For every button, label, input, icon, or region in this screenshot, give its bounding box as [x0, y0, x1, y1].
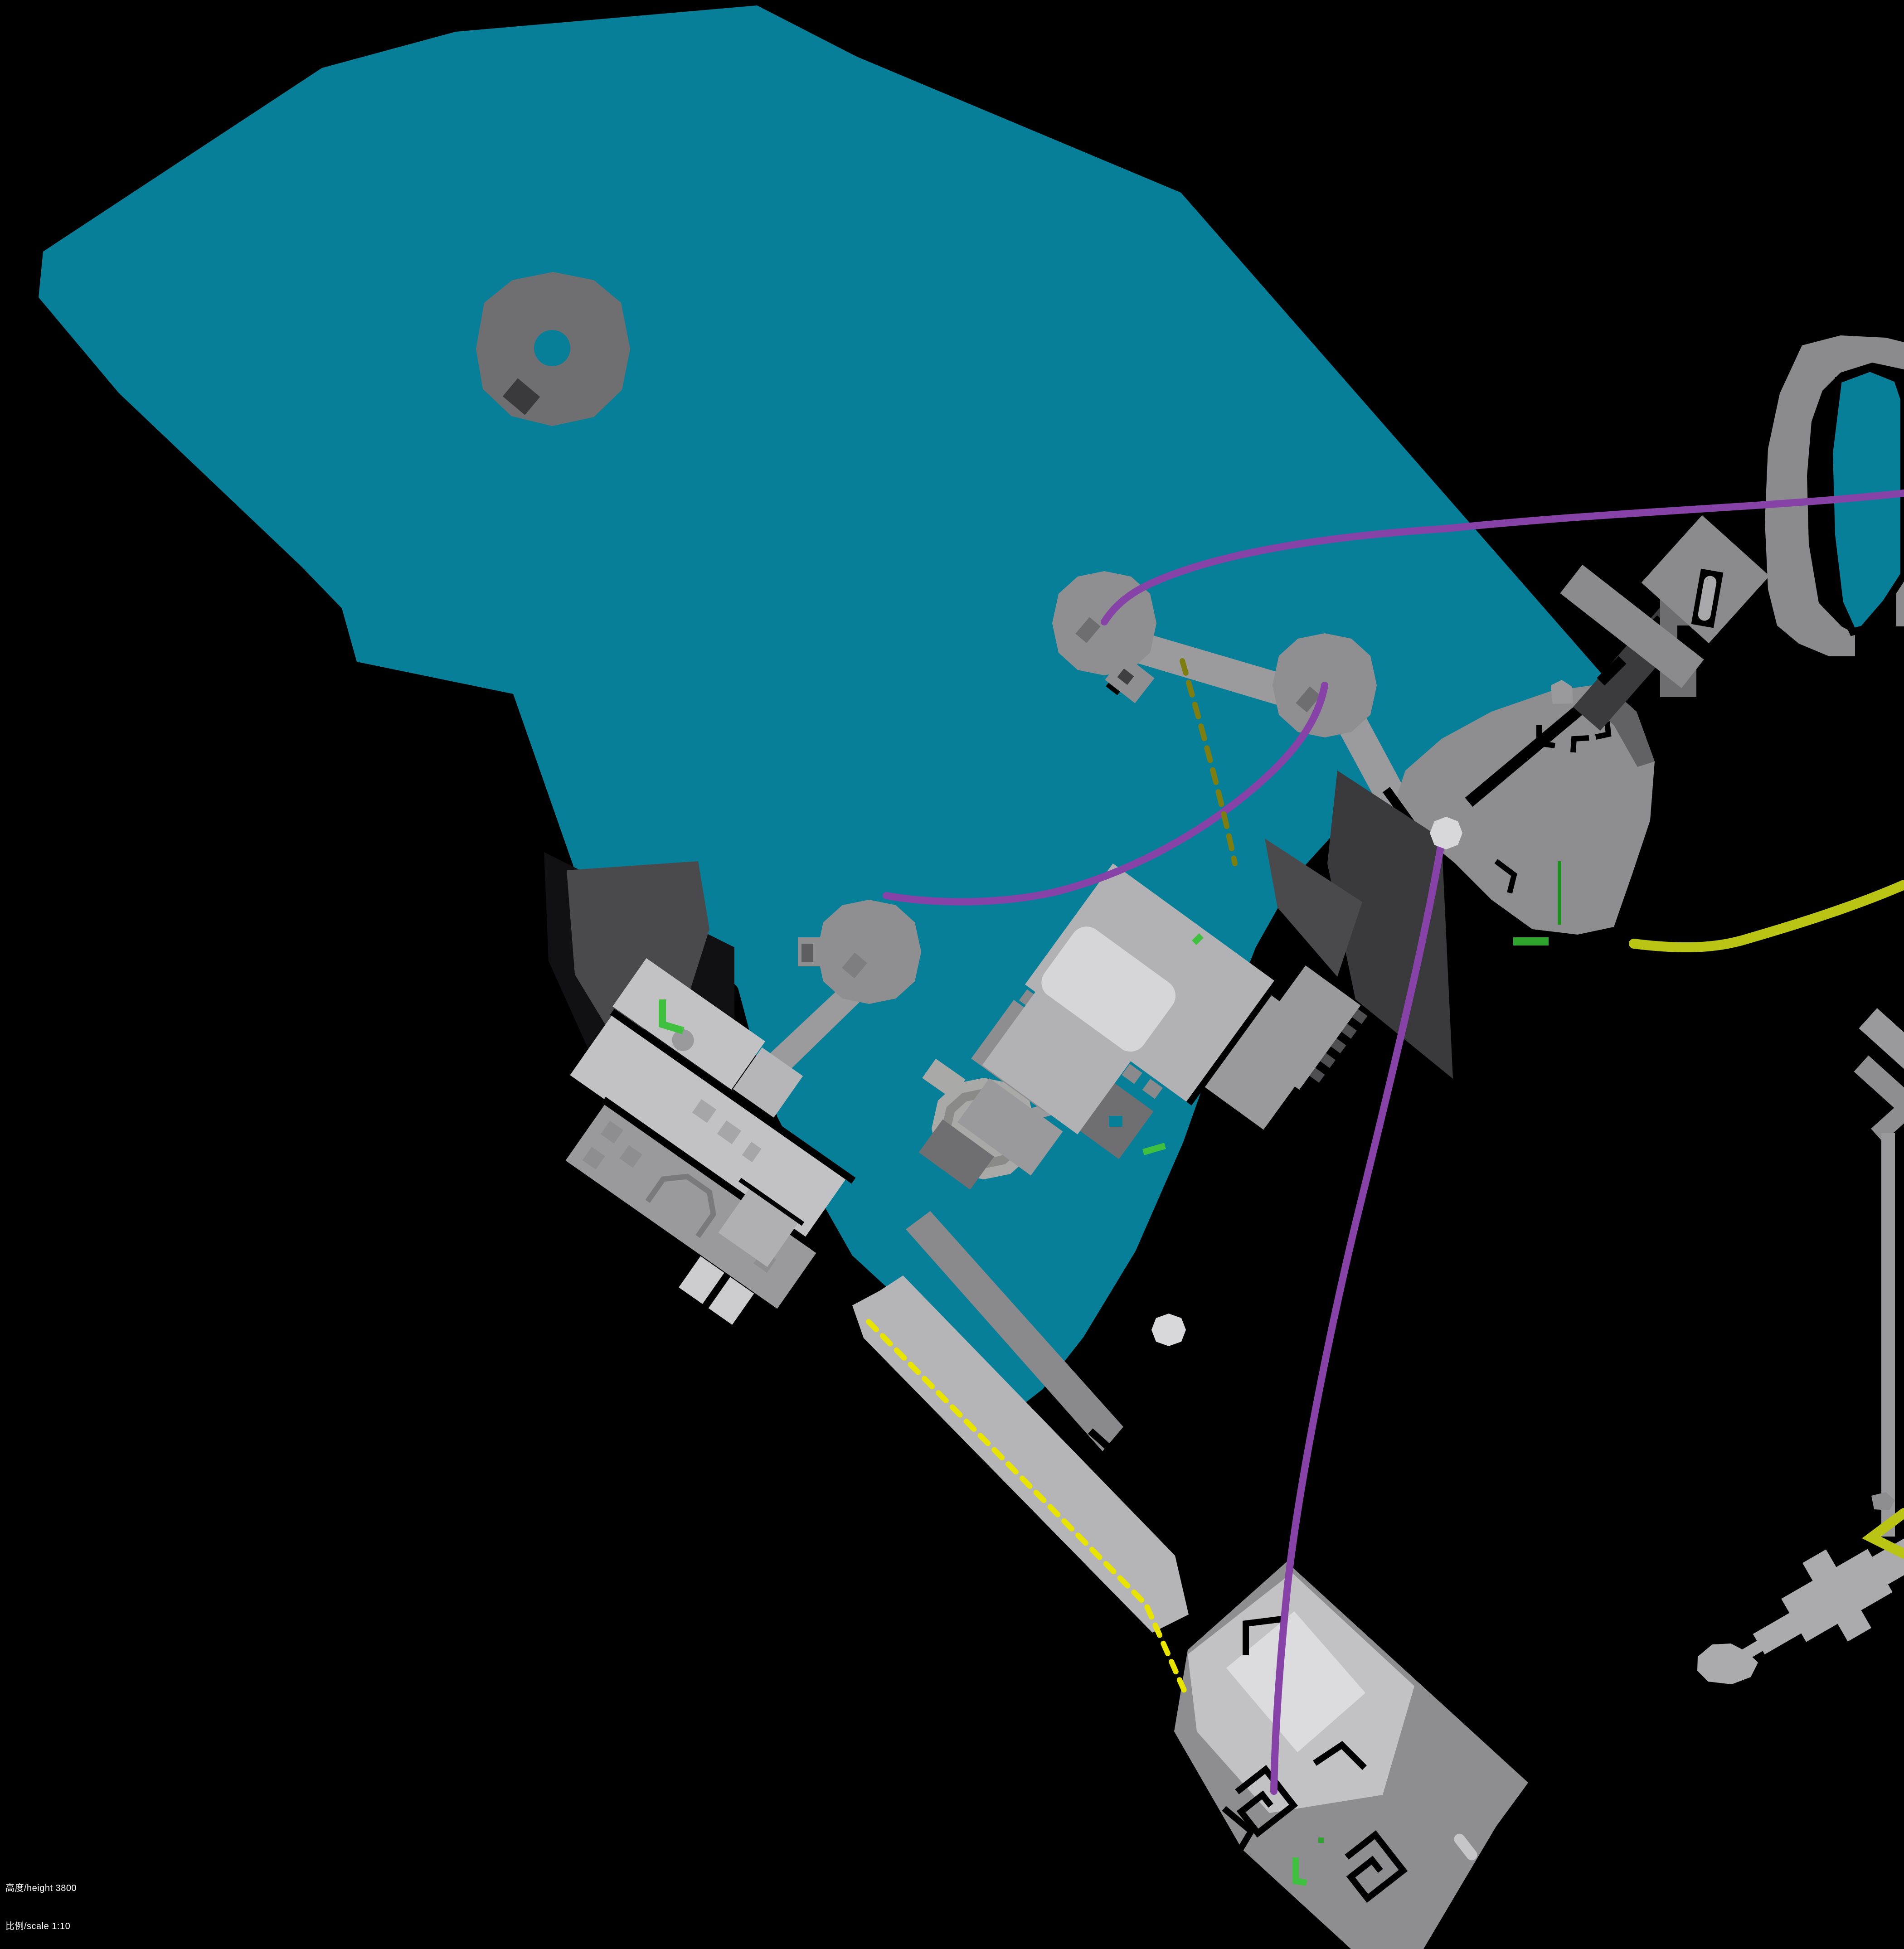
game-map-viewport[interactable]	[0, 0, 1904, 1949]
green-bar-marker	[1513, 937, 1549, 945]
height-label: 高度/height 3800	[5, 1882, 77, 1895]
node-hexagon-east	[1430, 817, 1462, 849]
scale-label: 比例/scale 1:10	[5, 1920, 77, 1933]
game-map	[0, 0, 1904, 1949]
vertical-pole	[1881, 1133, 1895, 1537]
map-caption: 高度/height 3800 比例/scale 1:10	[5, 1857, 77, 1945]
node-hexagon-pier	[1151, 1314, 1186, 1346]
green-line-marker	[1558, 861, 1561, 925]
